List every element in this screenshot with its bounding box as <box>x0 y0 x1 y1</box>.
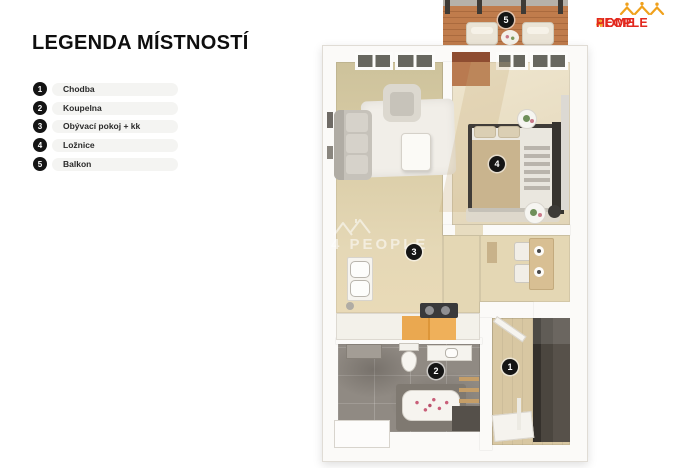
legend-number-badge: 2 <box>33 101 47 115</box>
living-window <box>355 52 393 70</box>
sofa-back <box>334 110 344 180</box>
stool <box>548 205 561 218</box>
bathroom-cabinet <box>346 344 382 359</box>
living-window <box>395 52 435 70</box>
railing-post <box>521 0 526 14</box>
place-setting <box>534 246 544 256</box>
towel-ladder <box>459 377 479 407</box>
balcony-railing <box>443 0 568 6</box>
legend-label: Balkon <box>63 159 91 169</box>
legend-label: Obývací pokoj + kk <box>63 121 140 131</box>
washbasin <box>427 345 472 361</box>
crown-icon <box>619 2 665 15</box>
railing-post <box>477 0 482 14</box>
coffee-table <box>401 133 431 171</box>
entrance-door <box>492 411 535 442</box>
sideboard <box>487 242 497 263</box>
legend-label: Koupelna <box>63 103 102 113</box>
balcony-chair <box>466 22 498 45</box>
bed-blanket <box>472 140 520 208</box>
home4people-logo: HOME 4 PEOPLE <box>596 2 691 32</box>
legend-item-balkon: 5 Balkon <box>33 157 183 171</box>
railing-post <box>445 0 450 14</box>
kitchen-cabinets <box>402 316 456 340</box>
room-marker-koupelna: 2 <box>428 363 444 379</box>
room-marker-balkon: 5 <box>498 12 514 28</box>
pillow <box>498 126 520 138</box>
legend-title: LEGENDA MÍSTNOSTÍ <box>32 32 249 55</box>
wall-notch <box>334 420 390 448</box>
bedroom-window <box>530 52 568 70</box>
room-marker-loznice: 4 <box>489 156 505 172</box>
legend-item-obyvaci-pokoj: 3 Obývací pokoj + kk <box>33 119 183 133</box>
wall-art <box>327 146 333 159</box>
legend-number-badge: 3 <box>33 119 47 133</box>
bedroom-rug <box>466 208 560 222</box>
dining-area-floor <box>443 235 480 313</box>
hallway-wardrobe <box>533 318 570 442</box>
plant-table <box>524 202 546 224</box>
logo-people: PEOPLE <box>596 16 648 30</box>
bedroom-door-opening <box>455 225 483 235</box>
legend-label: Chodba <box>63 84 95 94</box>
plant-table <box>517 109 537 129</box>
railing-post <box>558 0 563 14</box>
legend-item-koupelna: 2 Koupelna <box>33 101 183 115</box>
wall-art <box>327 112 333 128</box>
pillow <box>474 126 496 138</box>
door-frame <box>517 398 521 430</box>
house-icon <box>332 213 372 237</box>
legend-number-badge: 1 <box>33 82 47 96</box>
kitchen-sink-unit <box>347 257 373 301</box>
legend-item-loznice: 4 Ložnice <box>33 138 183 152</box>
cooktop <box>420 303 458 318</box>
balcony-table <box>501 30 519 45</box>
room-marker-obyvaci-pokoj: 3 <box>406 244 422 260</box>
curtain <box>561 95 569 210</box>
wall-hallway-top <box>480 302 533 318</box>
floorplan-page: LEGENDA MÍSTNOSTÍ 1 Chodba 2 Koupelna 3 … <box>0 0 695 468</box>
bath-mat <box>452 406 480 431</box>
legend-number-badge: 5 <box>33 157 47 171</box>
legend-number-badge: 4 <box>33 138 47 152</box>
balcony-chair <box>522 22 554 45</box>
room-marker-chodba: 1 <box>502 359 518 375</box>
legend-label: Ložnice <box>63 140 95 150</box>
place-setting <box>534 267 544 277</box>
bed-throw <box>524 146 550 190</box>
legend-item-chodba: 1 Chodba <box>33 82 183 96</box>
armchair <box>383 84 421 122</box>
kitchen-faucet <box>346 302 354 310</box>
toilet-tank <box>399 343 419 351</box>
